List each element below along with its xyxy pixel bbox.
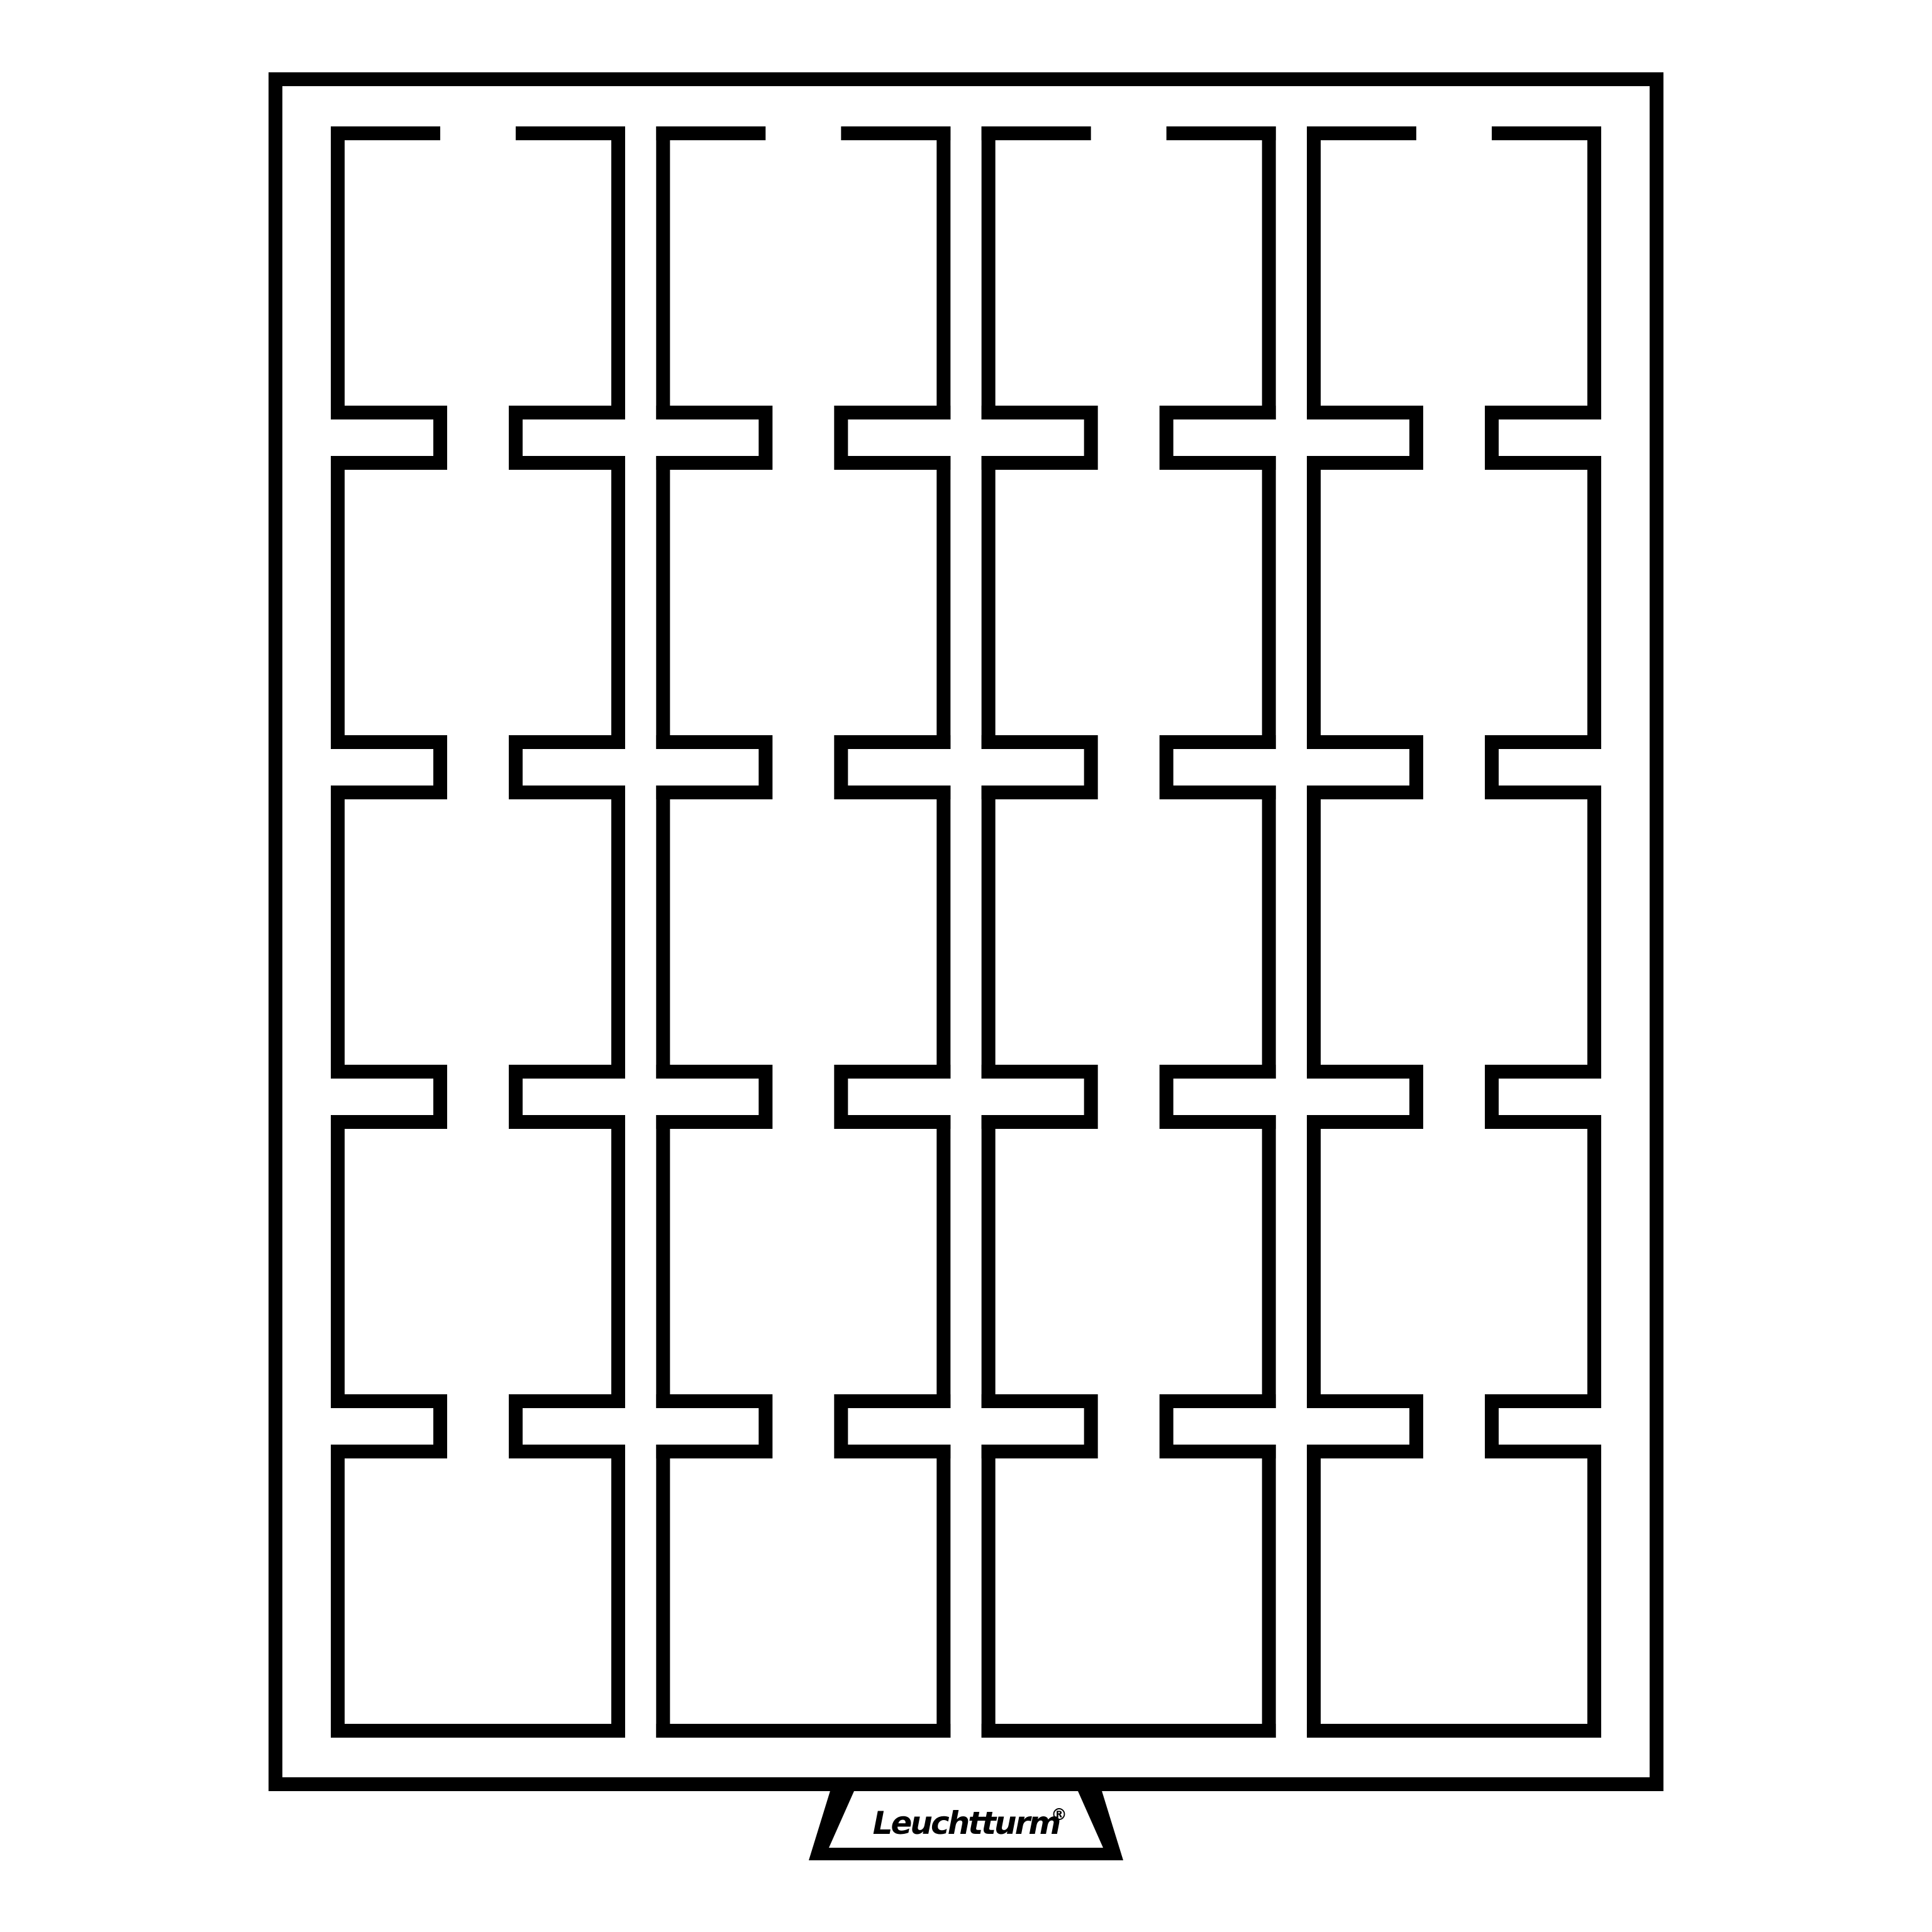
compartment-top-edge-right: [1492, 1445, 1601, 1458]
compartment-top-edge-right: [1492, 126, 1601, 140]
compartment-bottom-edge-right: [1167, 735, 1276, 749]
compartment-top-edge-left: [656, 1115, 765, 1129]
compartment-top-edge-left: [1307, 1115, 1416, 1129]
compartment-left-edge: [982, 456, 996, 749]
compartment-bottom-edge: [982, 1724, 1276, 1738]
compartment-right-edge: [611, 1445, 625, 1738]
compartment-left-edge: [1307, 786, 1321, 1079]
compartment-bottom-edge-right: [516, 735, 625, 749]
compartment-bottom-edge-left: [656, 406, 765, 419]
registered-mark: ®: [1051, 1806, 1067, 1824]
compartment-bottom-edge-left: [1307, 406, 1416, 419]
compartment-right-edge: [936, 126, 950, 419]
compartment-top-edge-right: [1167, 1445, 1276, 1458]
compartment-top-edge-left: [331, 1115, 440, 1129]
compartment-top-edge-right: [841, 456, 950, 470]
compartment-left-edge: [1307, 1115, 1321, 1408]
compartment-top-edge-right: [516, 456, 625, 470]
compartment-left-edge: [331, 456, 345, 749]
compartment-bottom-edge-left: [331, 406, 440, 419]
compartment-top-edge-left: [656, 126, 765, 140]
compartment-top-edge-right: [1167, 786, 1276, 799]
compartment-right-edge: [936, 786, 950, 1079]
compartment-top-edge-right: [1167, 126, 1276, 140]
compartment-right-edge: [1587, 1115, 1601, 1408]
compartment-bottom-edge-left: [1307, 735, 1416, 749]
compartment-right-edge: [611, 126, 625, 419]
compartment-bottom-edge-left: [982, 1394, 1091, 1408]
compartment-left-edge: [1307, 1445, 1321, 1738]
compartment-top-edge-right: [841, 786, 950, 799]
compartment-right-edge: [1262, 1445, 1276, 1738]
compartment-top-edge-left: [982, 786, 1091, 799]
compartment-right-edge: [936, 456, 950, 749]
compartment-bottom-edge-left: [331, 1065, 440, 1079]
compartment-left-edge: [331, 126, 345, 419]
compartment-right-edge: [1587, 456, 1601, 749]
compartment-right-edge: [1262, 1115, 1276, 1408]
compartment-right-edge: [1587, 786, 1601, 1079]
compartment-top-edge-right: [1167, 1115, 1276, 1129]
compartment-left-edge: [656, 786, 670, 1079]
compartment-bottom-edge-left: [331, 735, 440, 749]
compartment-bottom-edge-left: [656, 735, 765, 749]
compartment-top-edge-left: [656, 786, 765, 799]
compartment-top-edge-left: [656, 456, 765, 470]
compartment-bottom-edge-right: [1167, 406, 1276, 419]
compartment-bottom-edge-left: [982, 1065, 1091, 1079]
compartment-top-edge-right: [841, 126, 950, 140]
compartment-bottom-edge-right: [1492, 1065, 1601, 1079]
compartment-right-edge: [611, 456, 625, 749]
compartment-right-edge: [611, 1115, 625, 1408]
canvas-background: [0, 0, 1932, 1932]
compartment-top-edge-left: [331, 126, 440, 140]
compartment-left-edge: [656, 456, 670, 749]
compartment-bottom-edge: [656, 1724, 950, 1738]
brand-label-tab: Leuchtturm®: [809, 1785, 1123, 1860]
compartment-top-edge-right: [516, 1445, 625, 1458]
compartment-left-edge: [656, 1115, 670, 1408]
compartment-top-edge-right: [1492, 456, 1601, 470]
compartment-left-edge: [982, 786, 996, 1079]
compartment-bottom-edge-right: [1492, 735, 1601, 749]
compartment-right-edge: [1262, 786, 1276, 1079]
compartment-bottom-edge-left: [1307, 1065, 1416, 1079]
compartment-left-edge: [1307, 126, 1321, 419]
compartment-bottom-edge-right: [1492, 406, 1601, 419]
compartment-top-edge-right: [841, 1445, 950, 1458]
compartment-top-edge-left: [982, 126, 1091, 140]
compartment-bottom-edge-right: [1167, 1394, 1276, 1408]
compartment-bottom-edge-right: [516, 1394, 625, 1408]
compartment-bottom-edge: [1307, 1724, 1601, 1738]
compartment-left-edge: [656, 126, 670, 419]
compartment-left-edge: [331, 1445, 345, 1738]
compartment-top-edge-left: [1307, 456, 1416, 470]
compartment-top-edge-left: [1307, 786, 1416, 799]
compartment-top-edge-right: [516, 786, 625, 799]
compartment-bottom-edge-right: [841, 1394, 950, 1408]
compartment-left-edge: [331, 786, 345, 1079]
compartment-bottom-edge: [331, 1724, 625, 1738]
compartment-bottom-edge-left: [1307, 1394, 1416, 1408]
compartment-left-edge: [982, 126, 996, 419]
compartment-top-edge-right: [841, 1115, 950, 1129]
compartment-bottom-edge-right: [516, 1065, 625, 1079]
compartment-left-edge: [656, 1445, 670, 1738]
compartment-bottom-edge-right: [1492, 1394, 1601, 1408]
compartment-right-edge: [936, 1115, 950, 1408]
compartment-bottom-edge-right: [841, 406, 950, 419]
compartment-top-edge-right: [1492, 1115, 1601, 1129]
compartment-top-edge-right: [516, 126, 625, 140]
compartment-left-edge: [331, 1115, 345, 1408]
compartment-top-edge-left: [331, 456, 440, 470]
compartment-right-edge: [611, 786, 625, 1079]
compartment-left-edge: [982, 1115, 996, 1408]
tray-drawing: Leuchtturm®: [0, 0, 1932, 1932]
compartment-top-edge-left: [331, 786, 440, 799]
compartment-top-edge-left: [982, 1445, 1091, 1458]
brand-wordmark: Leuchtturm: [873, 1805, 1060, 1841]
compartment-bottom-edge-right: [841, 1065, 950, 1079]
compartment-right-edge: [1587, 1445, 1601, 1738]
compartment-right-edge: [936, 1445, 950, 1738]
coin-tray-diagram: Leuchtturm®: [0, 0, 1932, 1932]
compartment-left-edge: [1307, 456, 1321, 749]
compartment-top-edge-right: [1167, 456, 1276, 470]
compartment-right-edge: [1262, 456, 1276, 749]
compartment-top-edge-right: [516, 1115, 625, 1129]
compartment-top-edge-left: [982, 1115, 1091, 1129]
compartment-bottom-edge-left: [656, 1394, 765, 1408]
compartment-right-edge: [1262, 126, 1276, 419]
compartment-top-edge-right: [1492, 786, 1601, 799]
compartment-bottom-edge-left: [331, 1394, 440, 1408]
compartment-bottom-edge-right: [841, 735, 950, 749]
compartment-bottom-edge-left: [982, 735, 1091, 749]
compartment-left-edge: [982, 1445, 996, 1738]
compartment-bottom-edge-right: [1167, 1065, 1276, 1079]
compartment-bottom-edge-left: [982, 406, 1091, 419]
compartment-top-edge-left: [1307, 1445, 1416, 1458]
compartment-bottom-edge-right: [516, 406, 625, 419]
compartment-top-edge-left: [982, 456, 1091, 470]
compartment-bottom-edge-left: [656, 1065, 765, 1079]
compartment-top-edge-left: [1307, 126, 1416, 140]
compartment-top-edge-left: [656, 1445, 765, 1458]
compartment-right-edge: [1587, 126, 1601, 419]
compartment-top-edge-left: [331, 1445, 440, 1458]
